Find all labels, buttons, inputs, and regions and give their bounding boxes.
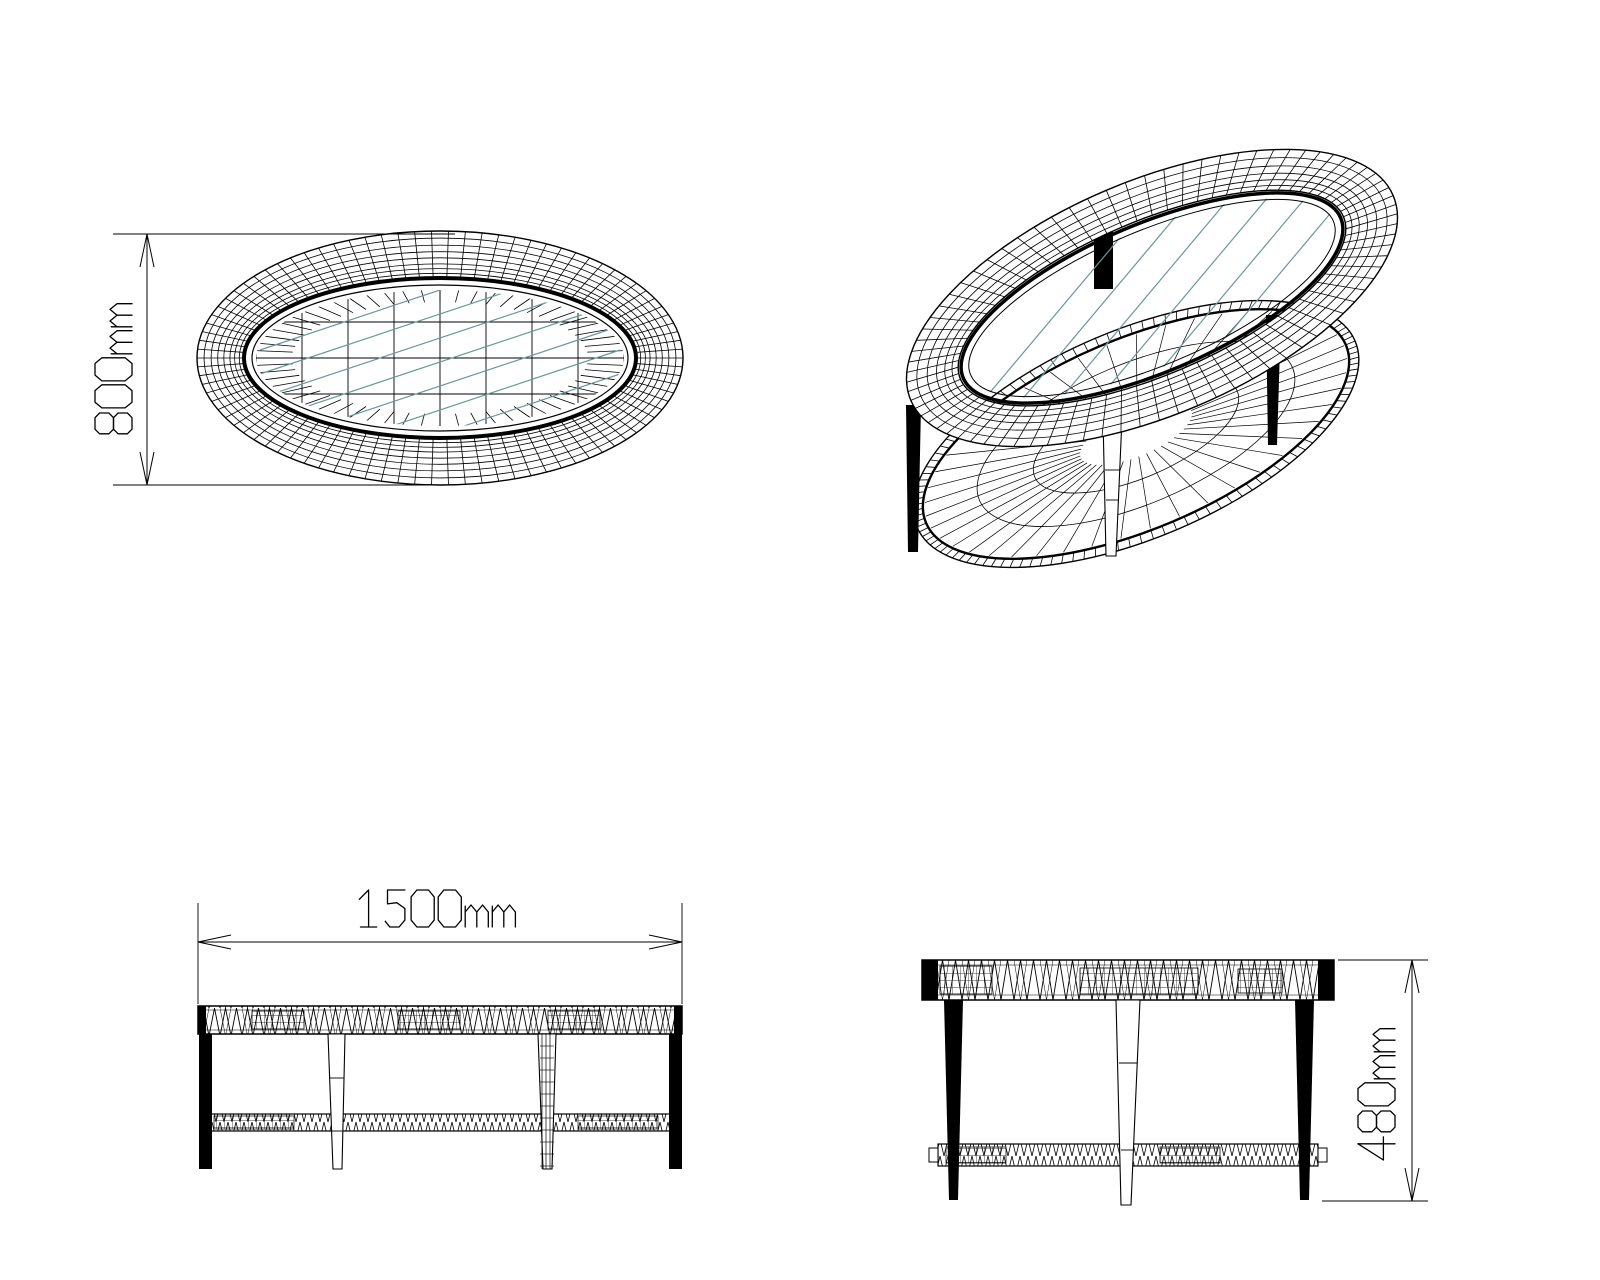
side-view-tabletop xyxy=(922,960,1334,1000)
dimension-label xyxy=(1358,1029,1395,1160)
cad-canvas: 800mm 1500mm 480mm xyxy=(0,0,1600,1280)
top-view: 800mm xyxy=(95,230,683,542)
front-view-tabletop xyxy=(198,1006,682,1034)
dimension-label xyxy=(359,890,515,927)
front-view-lower-shelf xyxy=(208,1114,672,1131)
cad-drawing-page: 800mm 1500mm 480mm xyxy=(0,0,1600,1280)
top-view-dimension-line xyxy=(95,234,455,485)
side-view-dimension-line xyxy=(1322,960,1428,1201)
side-view: 480mm xyxy=(922,960,1428,1205)
front-view-legs xyxy=(199,1034,682,1169)
front-view: 1500mm xyxy=(198,890,682,1169)
isometric-view xyxy=(865,88,1502,623)
dimension-label xyxy=(95,304,132,434)
side-view-legs xyxy=(944,1000,1314,1205)
front-view-dimension-line xyxy=(198,890,682,1004)
